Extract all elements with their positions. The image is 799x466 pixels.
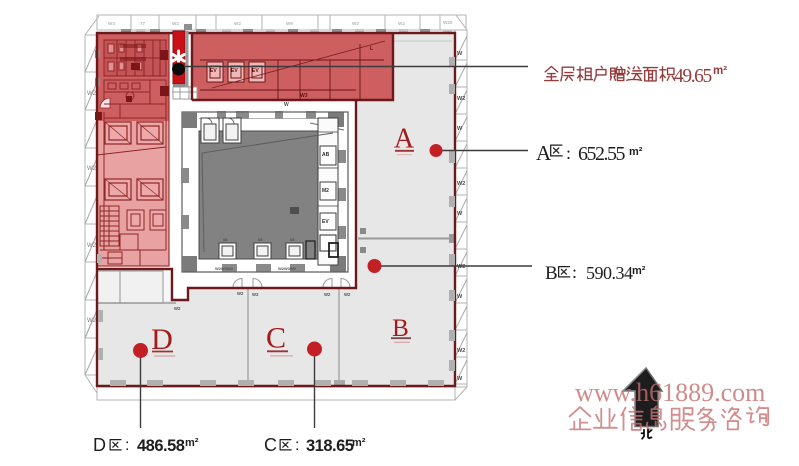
svg-text:08: 08 <box>290 237 295 242</box>
svg-text:W2: W2 <box>234 21 241 26</box>
svg-text:EV: EV <box>210 68 217 74</box>
svg-text:W2: W2 <box>237 291 244 296</box>
svg-text:W: W <box>457 294 463 300</box>
svg-text:W: W <box>457 126 463 132</box>
svg-text:652.55: 652.55 <box>578 143 626 165</box>
svg-text:m²: m² <box>185 437 199 449</box>
svg-text:C: C <box>264 435 277 455</box>
svg-text:W2: W2 <box>324 292 331 297</box>
svg-text:EV: EV <box>252 68 259 74</box>
svg-text::: : <box>125 437 129 454</box>
svg-text:m²: m² <box>352 437 366 449</box>
svg-text:W2: W2 <box>87 243 97 249</box>
svg-text:L: L <box>370 46 373 52</box>
svg-text:www.h61889.com: www.h61889.com <box>575 378 765 407</box>
svg-text:W: W <box>457 376 463 382</box>
svg-text:W2: W2 <box>87 166 97 172</box>
svg-text:m²: m² <box>713 65 727 77</box>
svg-text:M2: M2 <box>322 188 329 194</box>
svg-text::: : <box>572 262 577 282</box>
svg-text:W3: W3 <box>300 93 308 99</box>
svg-text:W2: W2 <box>352 21 359 26</box>
svg-text:W3: W3 <box>108 21 115 26</box>
svg-text:08: 08 <box>223 237 228 242</box>
svg-text:W2: W2 <box>457 96 465 102</box>
svg-text:W20: W20 <box>443 20 453 25</box>
svg-text:W2W3W2: W2W3W2 <box>278 266 297 271</box>
svg-text:B: B <box>545 263 558 284</box>
svg-text:D: D <box>93 435 106 455</box>
svg-text:W2: W2 <box>457 181 465 187</box>
svg-text:W2: W2 <box>457 264 465 270</box>
svg-text:W2: W2 <box>344 292 351 297</box>
svg-text:W: W <box>284 102 289 108</box>
svg-text:W2: W2 <box>398 21 405 26</box>
svg-text:W2W3W2: W2W3W2 <box>215 266 234 271</box>
svg-text:W: W <box>457 211 463 217</box>
svg-text:m²: m² <box>632 265 646 277</box>
svg-text:318.65: 318.65 <box>306 437 354 455</box>
svg-text:W3: W3 <box>252 292 259 297</box>
svg-text:W2: W2 <box>172 21 179 26</box>
svg-text:486.58: 486.58 <box>137 437 185 455</box>
svg-text:49.65: 49.65 <box>674 66 712 87</box>
svg-text:m²: m² <box>629 146 643 158</box>
svg-text:A: A <box>536 141 552 165</box>
svg-text:AB: AB <box>322 152 330 158</box>
svg-text:08: 08 <box>258 237 263 242</box>
svg-text:590.34: 590.34 <box>586 263 633 283</box>
svg-text:W9: W9 <box>286 21 293 26</box>
svg-text:W: W <box>457 51 463 57</box>
svg-text::: : <box>295 437 299 454</box>
svg-text:77: 77 <box>140 21 146 26</box>
svg-text:EV: EV <box>322 219 329 225</box>
svg-text:EV: EV <box>231 68 238 74</box>
svg-text:C: C <box>266 322 286 355</box>
svg-text:W2: W2 <box>174 306 181 311</box>
svg-text::: : <box>566 143 571 163</box>
svg-text:W2: W2 <box>87 91 97 97</box>
svg-text:W2: W2 <box>457 348 465 354</box>
svg-text:A: A <box>394 124 415 155</box>
